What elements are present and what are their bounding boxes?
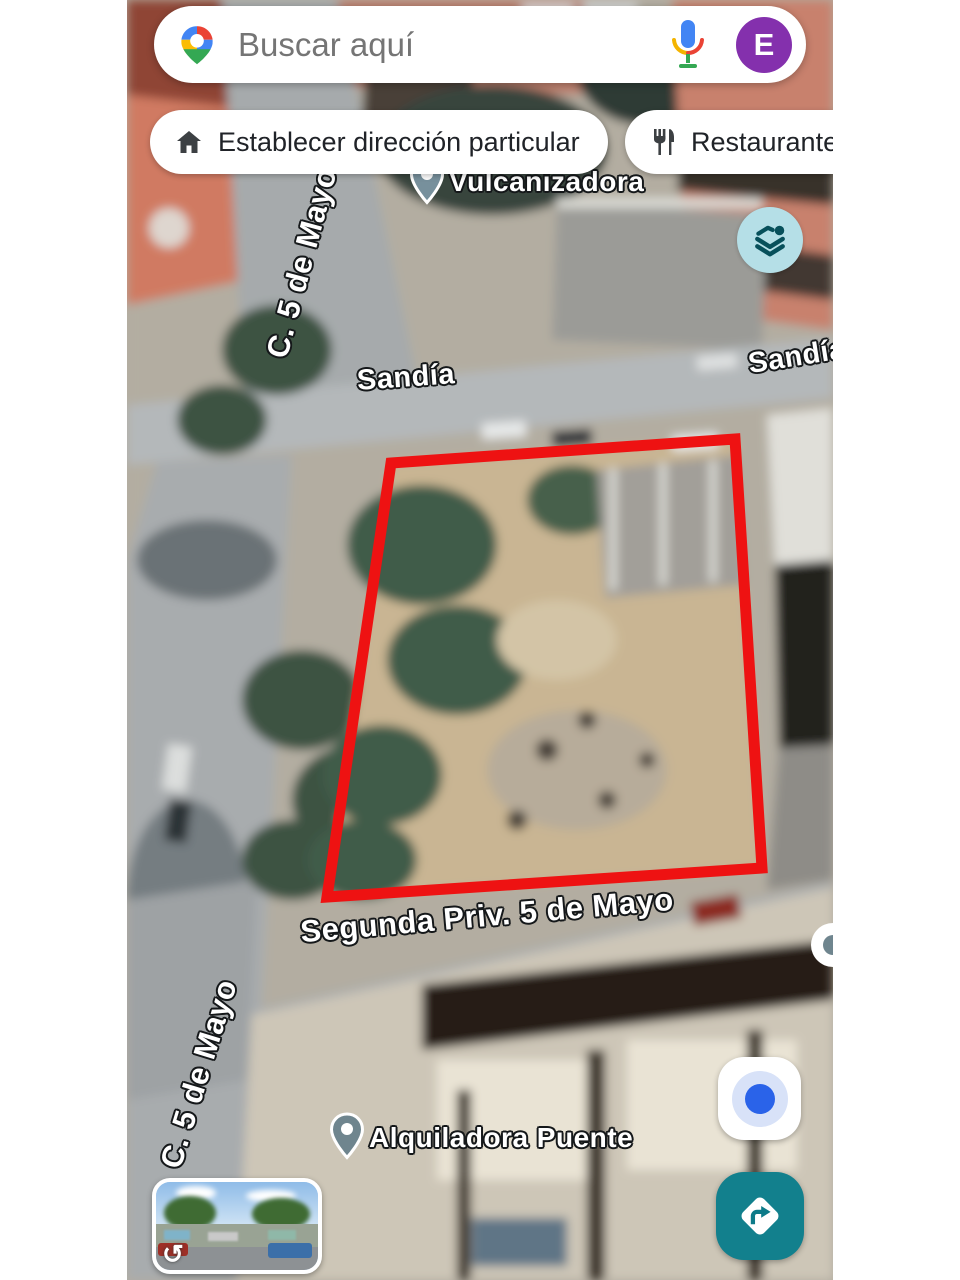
home-icon	[174, 127, 204, 157]
map-pin-icon[interactable]	[328, 1112, 366, 1160]
directions-diamond-icon	[734, 1190, 786, 1242]
map-canvas[interactable]: C. 5 de Mayo Sandía Sandía Segunda Priv.…	[127, 0, 833, 1280]
rotate-view-icon: ↺	[162, 1239, 184, 1270]
poi-label-alquiladora-puente[interactable]: Alquiladora Puente	[369, 1122, 633, 1154]
my-location-icon	[732, 1071, 788, 1127]
search-input[interactable]	[236, 25, 666, 65]
street-view-thumbnail[interactable]: ↺	[152, 1178, 322, 1274]
chip-set-home-address[interactable]: Establecer dirección particular	[150, 110, 608, 174]
chip-restaurants[interactable]: Restaurantes	[625, 110, 833, 174]
search-bar[interactable]: E	[154, 6, 806, 83]
layers-button[interactable]	[737, 207, 803, 273]
account-avatar[interactable]: E	[736, 17, 792, 73]
google-maps-pin-icon	[176, 24, 218, 66]
directions-button[interactable]	[716, 1172, 804, 1260]
chip-label: Restaurantes	[691, 127, 833, 158]
layers-icon	[751, 221, 789, 259]
restaurant-icon	[649, 127, 677, 157]
chip-label: Establecer dirección particular	[218, 127, 580, 158]
street-label-sandia-left: Sandía	[356, 358, 456, 398]
my-location-button[interactable]	[718, 1057, 801, 1140]
voice-search-icon[interactable]	[666, 16, 710, 74]
